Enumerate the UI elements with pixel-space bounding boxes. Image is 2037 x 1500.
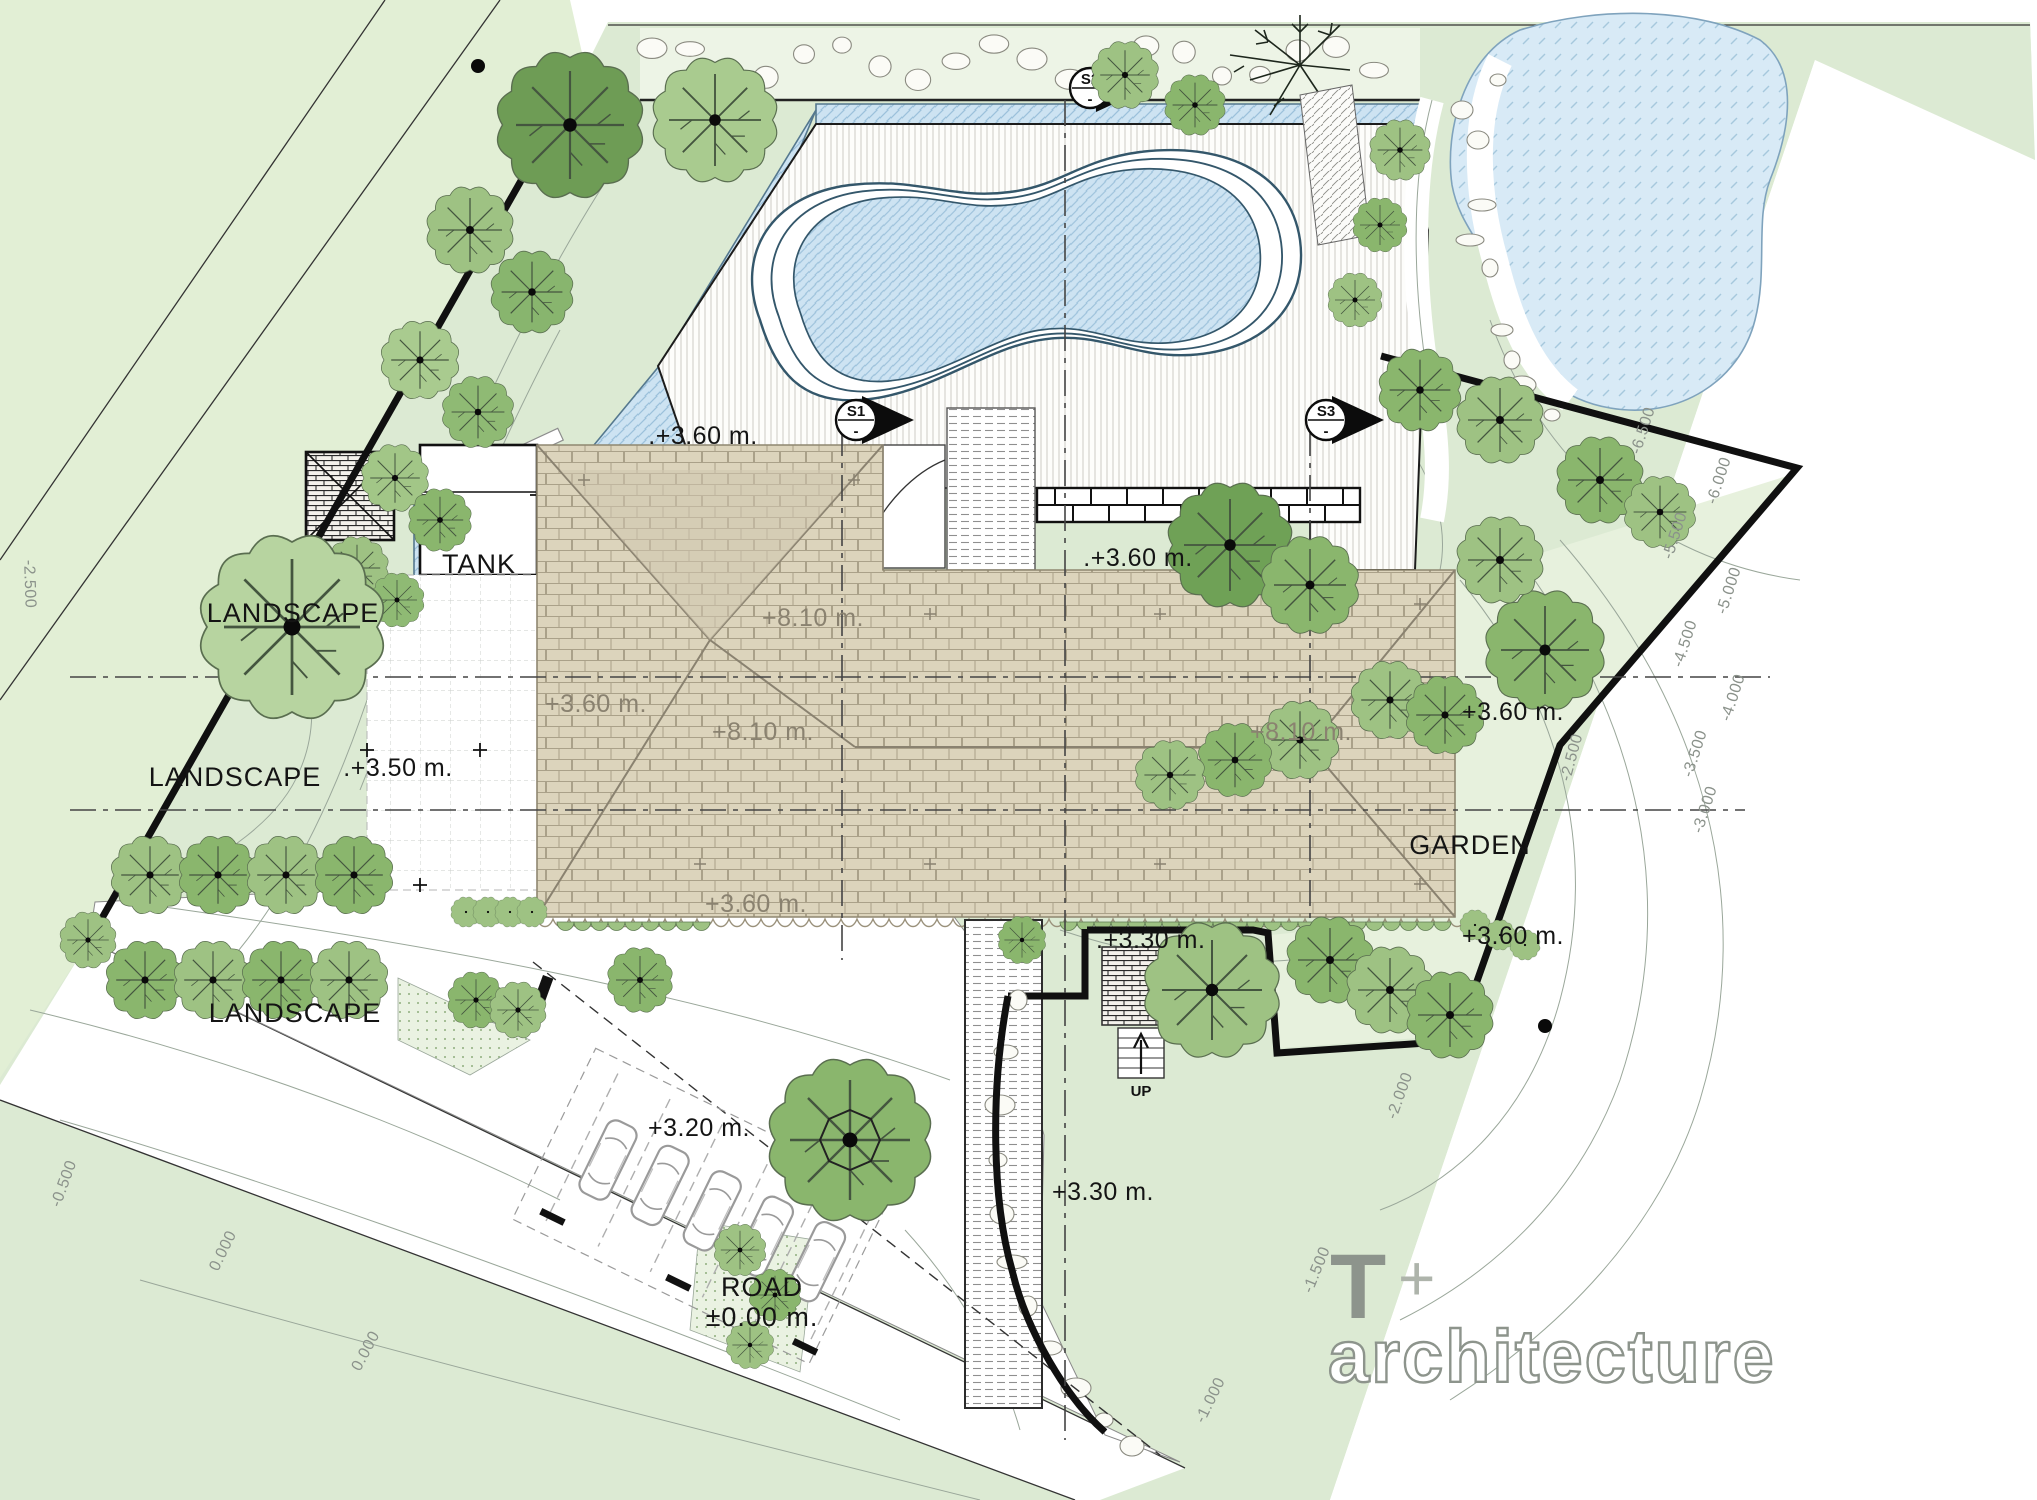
- svg-text:-: -: [1088, 91, 1093, 108]
- elev-terrace: .+3.30 m.: [1096, 926, 1205, 954]
- tree-icon: [106, 941, 183, 1018]
- tree-icon: [1136, 741, 1205, 810]
- stone-icon: [1120, 1436, 1144, 1456]
- road-label: ROAD: [721, 1272, 803, 1302]
- tree-icon: [498, 53, 643, 198]
- stone-icon: [1490, 74, 1506, 86]
- tree-icon: [1379, 349, 1461, 431]
- stone-icon: [1544, 409, 1560, 421]
- road-level-label: ±0.00 m.: [706, 1302, 819, 1332]
- up-label: UP: [1131, 1083, 1152, 1100]
- landscape-mid-label: LANDSCAPE: [149, 762, 322, 792]
- elev-ridge-right: +8.10 m.: [1250, 718, 1352, 746]
- tree-icon: [1407, 972, 1493, 1058]
- tree-icon: [1353, 198, 1407, 252]
- stone-icon: [1456, 234, 1484, 246]
- elev-courtyard: .+3.50 m.: [343, 754, 452, 782]
- elev-walkway: +3.30 m.: [1052, 1178, 1154, 1206]
- stone-icon: [985, 1095, 1015, 1115]
- tree-icon: [490, 982, 546, 1038]
- shrub-icon: [517, 897, 547, 927]
- stone-icon: [1323, 36, 1350, 57]
- elev-roof-left: +3.60 m.: [545, 690, 647, 718]
- tree-icon: [1457, 517, 1543, 603]
- survey-dot: [1538, 1019, 1552, 1033]
- stone-icon: [1451, 101, 1473, 119]
- svg-text:-: -: [1324, 423, 1329, 440]
- stone-icon: [979, 35, 1008, 53]
- logo-word: architecture: [1328, 1315, 1776, 1398]
- stone-icon: [676, 42, 705, 57]
- contour-label: -2.500: [20, 560, 39, 609]
- logo-plus: +: [1398, 1242, 1435, 1314]
- tree-icon: [1092, 42, 1159, 109]
- plank-bridge: [947, 408, 1035, 570]
- stone-icon: [1504, 351, 1520, 369]
- landscape-lower-label: LANDSCAPE: [209, 998, 382, 1028]
- landscape-upper-label: LANDSCAPE: [207, 598, 380, 628]
- elev-roof-bottom-left: +3.60 m.: [705, 890, 807, 918]
- stone-icon: [869, 56, 891, 77]
- tree-icon: [1370, 120, 1430, 180]
- s3-label: S3: [1317, 403, 1335, 420]
- tree-icon: [111, 836, 188, 913]
- stone-icon: [1017, 48, 1047, 70]
- tree-icon: [247, 836, 324, 913]
- tree-icon: [1457, 377, 1543, 463]
- tree-icon: [998, 916, 1045, 963]
- site-plan-sheet: TANK UP: [0, 0, 2037, 1500]
- garden-label: GARDEN: [1409, 830, 1531, 860]
- elev-ridge-left: +8.10 m.: [712, 718, 814, 746]
- survey-dot: [471, 59, 485, 73]
- site-plan: TANK UP: [0, 0, 2037, 1500]
- stone-icon: [1173, 41, 1195, 63]
- tree-icon: [1486, 591, 1604, 709]
- stone-icon: [1482, 259, 1498, 277]
- elev-garden-right: +3.60 m.: [1462, 698, 1564, 726]
- stone-icon: [1491, 324, 1513, 336]
- stone-icon: [1009, 990, 1027, 1010]
- tree-icon: [60, 912, 116, 968]
- tree-icon: [714, 1224, 766, 1276]
- elev-garden-bottom-right: +3.60 m.: [1462, 922, 1564, 950]
- tree-icon: [179, 836, 256, 913]
- stone-icon: [942, 53, 970, 69]
- svg-text:-: -: [854, 423, 859, 440]
- stone-icon: [637, 38, 667, 58]
- stone-icon: [1360, 62, 1389, 78]
- tree-icon: [409, 489, 471, 551]
- tree-icon: [491, 251, 573, 333]
- tree-icon: [653, 58, 777, 182]
- tree-icon: [1328, 273, 1382, 327]
- tree-icon: [608, 948, 672, 1012]
- tree-icon: [1262, 537, 1359, 634]
- tree-icon: [1625, 477, 1696, 548]
- elev-parking: +3.20 m.: [648, 1114, 750, 1142]
- tree-icon: [427, 187, 513, 273]
- stone-icon: [1468, 199, 1496, 211]
- stone-icon: [905, 69, 930, 90]
- elev-peak: +8.10 m.: [762, 604, 864, 632]
- tree-icon: [443, 377, 514, 448]
- stone-icon: [794, 45, 815, 64]
- stone-icon: [833, 37, 852, 53]
- elev-deck-top: .+3.60 m.: [648, 422, 757, 450]
- tree-icon: [1165, 75, 1225, 135]
- s1-label: S1: [847, 403, 865, 420]
- elev-garden-strip: .+3.60 m.: [1083, 544, 1192, 572]
- tree-icon: [315, 836, 392, 913]
- stone-icon: [1467, 131, 1489, 149]
- tree-icon: [769, 1059, 930, 1220]
- tree-icon: [381, 321, 458, 398]
